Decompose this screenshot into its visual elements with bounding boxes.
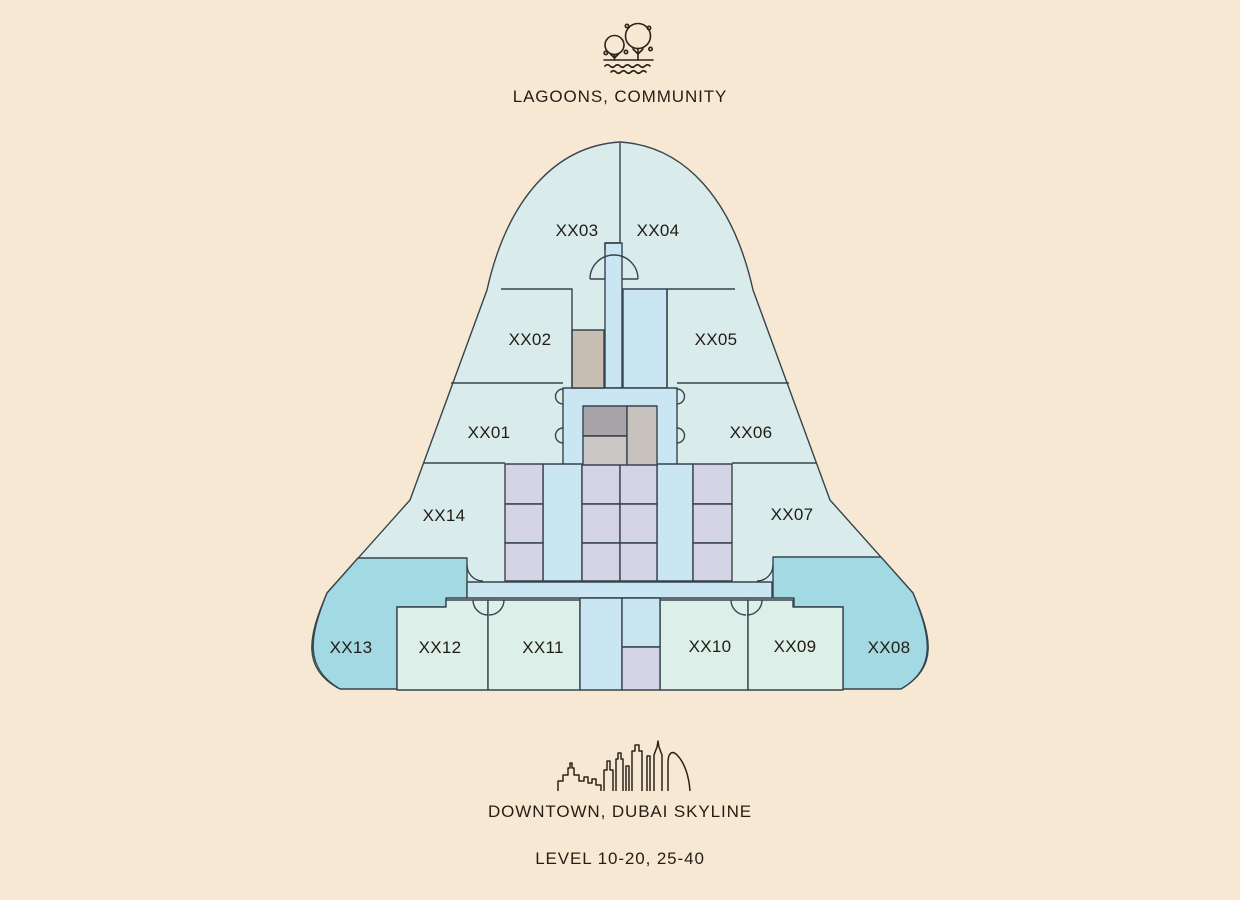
grid-shaft-right	[657, 464, 693, 581]
locker	[582, 504, 620, 543]
locker	[505, 504, 543, 543]
unit-label-xx04: XX04	[637, 221, 680, 240]
unit-label-xx13: XX13	[330, 638, 373, 657]
unit-label-xx09: XX09	[774, 637, 817, 656]
locker	[620, 504, 657, 543]
unit-label-xx06: XX06	[730, 423, 773, 442]
elevator-light	[583, 436, 627, 465]
stair-block	[627, 406, 657, 465]
upper-shaft	[623, 289, 667, 388]
locker	[620, 464, 657, 504]
unit-label-xx08: XX08	[868, 638, 911, 657]
unit-label-xx12: XX12	[419, 638, 462, 657]
locker	[693, 543, 732, 581]
locker	[693, 464, 732, 504]
unit-label-xx01: XX01	[468, 423, 511, 442]
level-label: LEVEL 10-20, 25-40	[0, 849, 1240, 869]
unit-label-xx05: XX05	[695, 330, 738, 349]
spine-corridor	[605, 243, 622, 388]
locker	[505, 464, 543, 504]
skyline-blocks-left	[558, 763, 601, 791]
skyline-burj-khalifa	[654, 741, 662, 791]
service-shaft	[572, 330, 604, 388]
skyline-sail-building	[668, 753, 690, 791]
dubai-skyline-icon	[556, 739, 702, 792]
skyline-towers-mid	[604, 745, 650, 791]
locker	[620, 543, 657, 581]
lower-shaft-b	[622, 598, 660, 647]
locker	[622, 647, 660, 690]
unit-label-xx10: XX10	[689, 637, 732, 656]
elevator-dark	[583, 406, 627, 436]
locker	[582, 543, 620, 581]
locker	[582, 464, 620, 504]
unit-label-xx03: XX03	[556, 221, 599, 240]
floorplan-page: LAGOONS, COMMUNITY	[0, 0, 1240, 900]
lower-shaft-a	[580, 598, 622, 690]
grid-shaft-left	[543, 464, 582, 581]
locker	[693, 504, 732, 543]
unit-label-xx02: XX02	[509, 330, 552, 349]
unit-label-xx14: XX14	[423, 506, 466, 525]
unit-label-xx11: XX11	[522, 638, 564, 657]
unit-label-xx07: XX07	[771, 505, 814, 524]
main-corridor	[467, 582, 772, 598]
locker	[505, 543, 543, 581]
skyline-label: DOWNTOWN, DUBAI SKYLINE	[0, 802, 1240, 822]
